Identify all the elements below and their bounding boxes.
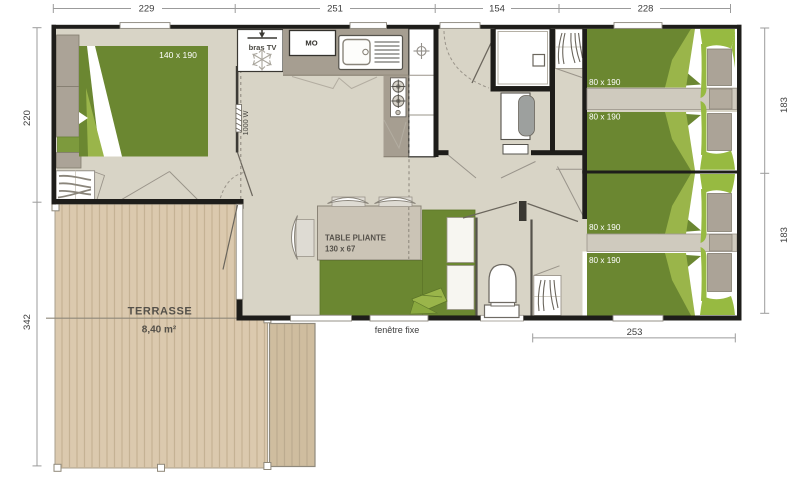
svg-text:140 x 190: 140 x 190 — [159, 50, 197, 60]
svg-text:TABLE PLIANTE: TABLE PLIANTE — [325, 234, 386, 243]
svg-text:130 x 67: 130 x 67 — [325, 245, 355, 254]
svg-text:80 x 190: 80 x 190 — [589, 223, 621, 232]
svg-text:fenêtre fixe: fenêtre fixe — [375, 325, 420, 335]
svg-text:228: 228 — [638, 4, 654, 15]
svg-text:342: 342 — [22, 314, 33, 330]
svg-text:154: 154 — [489, 4, 505, 15]
svg-text:MO: MO — [305, 39, 317, 48]
svg-text:220: 220 — [22, 110, 33, 126]
svg-text:183: 183 — [779, 227, 790, 243]
svg-text:253: 253 — [627, 327, 643, 338]
svg-text:80 x 190: 80 x 190 — [589, 113, 621, 122]
svg-text:229: 229 — [139, 4, 155, 15]
svg-text:183: 183 — [779, 97, 790, 113]
svg-text:80 x 190: 80 x 190 — [589, 78, 621, 87]
svg-text:8,40 m²: 8,40 m² — [142, 325, 177, 336]
svg-text:80 x 190: 80 x 190 — [589, 256, 621, 265]
svg-text:TERRASSE: TERRASSE — [128, 306, 193, 318]
svg-text:1000 W: 1000 W — [241, 110, 250, 135]
svg-text:251: 251 — [327, 4, 343, 15]
